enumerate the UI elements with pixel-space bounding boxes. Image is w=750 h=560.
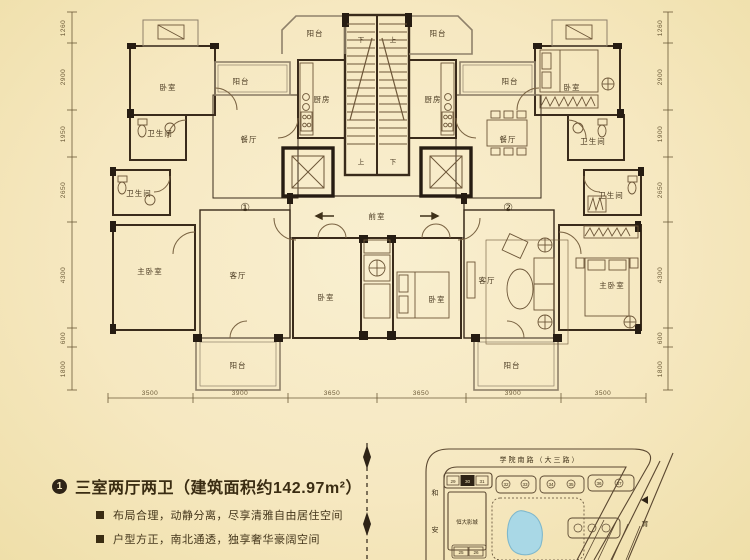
kitchen-label: 厨房 <box>314 94 331 104</box>
map-road-right-label: 育 <box>642 519 649 528</box>
dim-right: 4300 <box>657 267 664 283</box>
balcony-label: 阳台 <box>233 76 250 86</box>
map-road-left-label: 和 <box>432 488 439 497</box>
unit1-mark: ① <box>240 202 250 214</box>
map-building-number: 35 <box>568 482 574 487</box>
balcony-label: 阳台 <box>504 360 521 370</box>
dim-left: 1800 <box>60 361 67 377</box>
stair-up-label: 上 <box>390 35 397 44</box>
living-label: 客厅 <box>230 270 247 280</box>
dim-left: 1260 <box>60 20 67 36</box>
dim-left: 2900 <box>60 69 67 85</box>
stair-down-label: 下 <box>358 36 365 44</box>
dim-bottom: 3500 <box>595 390 611 397</box>
map-road-diagonal <box>628 453 673 560</box>
dim-left: 1950 <box>60 126 67 142</box>
balcony-label: 阳台 <box>230 360 247 370</box>
map-building-number-highlighted: 30 <box>465 479 471 484</box>
kitchen-label: 厨房 <box>425 94 442 104</box>
unit2-mark: ② <box>503 202 513 214</box>
bath-label: 卫生间 <box>598 190 624 200</box>
dim-bottom: 3650 <box>413 390 429 397</box>
stair-up-label: 上 <box>358 157 365 166</box>
bedroom-label: 卧室 <box>160 82 177 92</box>
map-lake <box>507 511 542 555</box>
bath-label: 卫生间 <box>126 188 152 198</box>
site-map <box>426 449 673 560</box>
unit-description: 1 三室两厅两卫（建筑面积约142.97m²） 布局合理，动静分离，尽享清雅自由… <box>52 474 352 555</box>
feature-text: 布局合理，动静分离，尽享清雅自由居住空间 <box>113 507 343 523</box>
section-divider <box>363 443 371 560</box>
bath-label: 卫生间 <box>580 136 606 146</box>
dim-bottom: 3650 <box>324 390 340 397</box>
room-labels: 阳台 阳台 阳台 阳台 阳台 阳台 卧室 卧室 卧室 卧室 主卧室 主卧室 厨房… <box>126 28 625 370</box>
stair-down-label: 下 <box>390 158 397 166</box>
dim-right: 2900 <box>657 69 664 85</box>
map-building-number: 36 <box>596 481 602 486</box>
balcony-label: 阳台 <box>430 28 447 38</box>
feature-text: 户型方正，南北通透，独享奢华豪阔空间 <box>113 531 320 547</box>
dim-left: 4300 <box>60 267 67 283</box>
map-building-number: 34 <box>548 482 554 487</box>
unit-number-badge: 1 <box>52 479 67 494</box>
map-building-number: 33 <box>522 482 528 487</box>
dim-right: 1260 <box>657 20 664 36</box>
bath-label: 卫生间 <box>147 128 173 138</box>
balcony-label: 阳台 <box>307 28 324 38</box>
bedroom-label: 卧室 <box>318 292 335 302</box>
bullet-square-icon <box>96 511 104 519</box>
dim-right: 1900 <box>657 126 664 142</box>
map-building-number: 26 <box>473 550 479 555</box>
map-building-number: 25 <box>458 550 464 555</box>
map-building-number: 32 <box>503 482 509 487</box>
living-label: 客厅 <box>479 275 496 285</box>
map-building-number: 31 <box>479 479 485 484</box>
front-room-label: 前室 <box>369 211 386 221</box>
dim-right: 600 <box>657 332 664 344</box>
map-building-number: 29 <box>450 479 456 484</box>
map-road-left-label: 安 <box>432 525 439 534</box>
dim-bottom: 3900 <box>505 390 521 397</box>
dim-right: 2650 <box>657 182 664 198</box>
map-road-top-label: 学院南路（大三路） <box>500 455 581 464</box>
feature-bullet: 户型方正，南北通透，独享奢华豪阔空间 <box>96 531 352 547</box>
dining-label: 餐厅 <box>500 135 517 144</box>
balcony-label: 阳台 <box>502 76 519 86</box>
dining-label: 餐厅 <box>241 135 258 144</box>
bullet-square-icon <box>96 535 104 543</box>
bedroom-label: 卧室 <box>564 82 581 92</box>
master-bedroom-label: 主卧室 <box>599 280 625 290</box>
map-cinema-label: 恒大影城 <box>456 518 478 526</box>
master-bedroom-label: 主卧室 <box>137 266 163 276</box>
map-road-hatch <box>584 520 640 560</box>
dim-left: 2650 <box>60 182 67 198</box>
bedroom-label: 卧室 <box>429 294 446 304</box>
dim-bottom: 3500 <box>142 390 158 397</box>
feature-bullet: 布局合理，动静分离，尽享清雅自由居住空间 <box>96 507 352 523</box>
dim-right: 1800 <box>657 361 664 377</box>
floorplan-page: 阳台 阳台 阳台 阳台 阳台 阳台 卧室 卧室 卧室 卧室 主卧室 主卧室 厨房… <box>0 0 750 560</box>
dim-left: 600 <box>60 332 67 344</box>
dimension-rulers <box>67 12 673 403</box>
stairs <box>347 16 407 174</box>
map-building-number: 37 <box>616 481 622 486</box>
dim-bottom: 3900 <box>232 390 248 397</box>
unit-title: 三室两厅两卫（建筑面积约142.97m²） <box>75 474 362 498</box>
